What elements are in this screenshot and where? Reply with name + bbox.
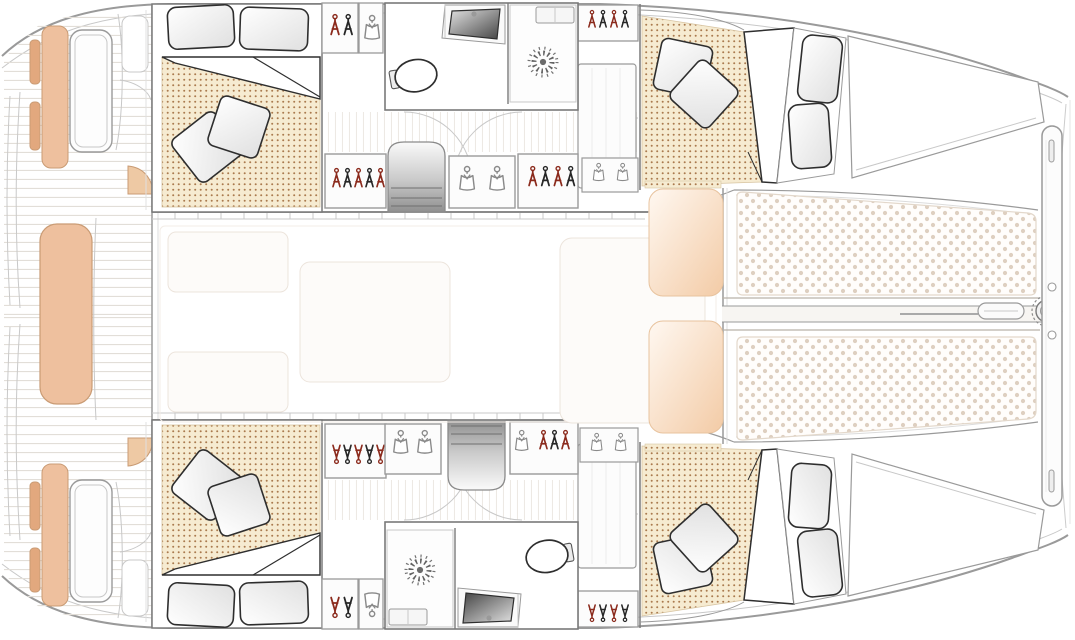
shirt-locker [385, 424, 441, 474]
crossbeam-eye [1048, 331, 1056, 339]
crossbeam-eye [1048, 283, 1056, 291]
crossbeam-slot [1049, 140, 1054, 162]
port-bathroom [385, 3, 578, 110]
aft-bench [40, 224, 92, 404]
galley-unit [168, 352, 288, 412]
shirt-locker [580, 428, 638, 462]
forward-seat-cushion [649, 189, 723, 296]
saloon-table [300, 262, 450, 382]
shirt-locker [582, 158, 638, 192]
starboard-bathroom [385, 522, 578, 629]
forward-seat-cushion [649, 321, 723, 433]
floor-plan-page: Catamaran yacht accommodation floor plan… [0, 0, 1075, 640]
shirt-locker [449, 156, 515, 208]
crossbeam-slot [1049, 470, 1054, 492]
companionway-stairs-starboard [448, 420, 505, 490]
galley-unit [168, 232, 288, 292]
catamaran-floor-plan: Catamaran yacht accommodation floor plan… [0, 0, 1075, 640]
crossbeam-bar [1042, 126, 1062, 506]
companionway-stairs-port [388, 142, 445, 212]
